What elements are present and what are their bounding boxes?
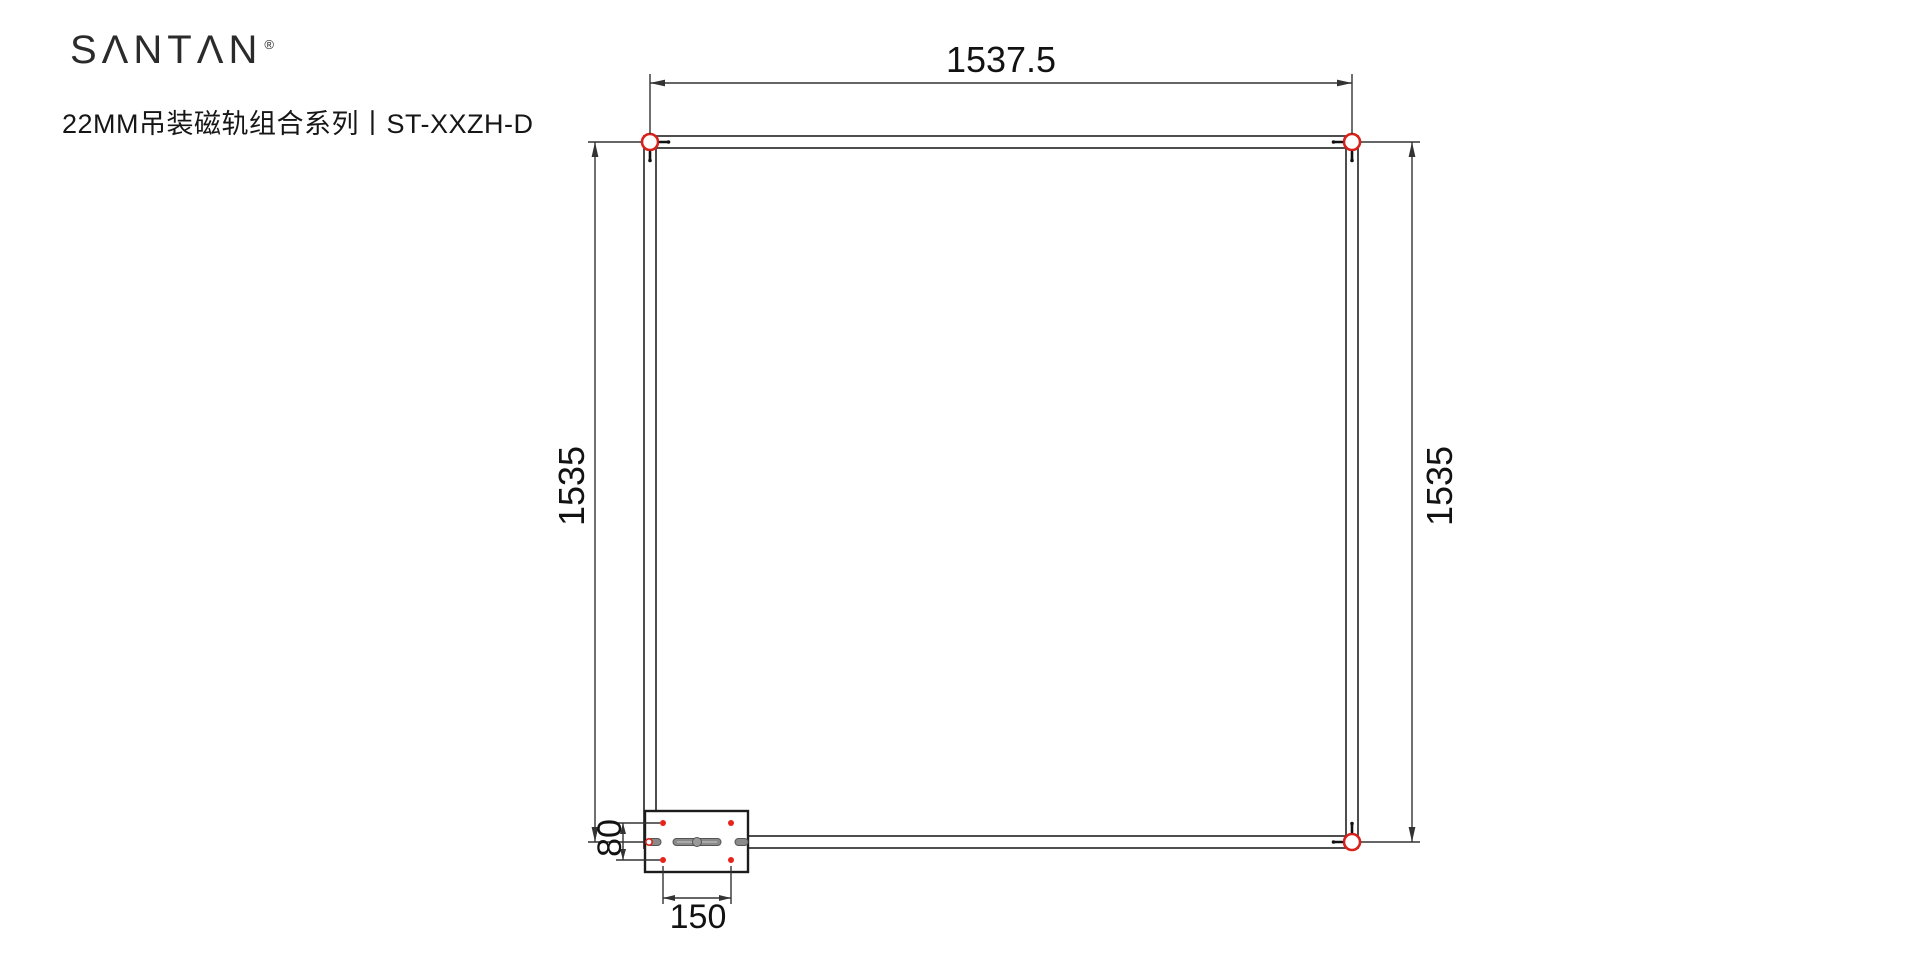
screw-dot <box>660 857 666 863</box>
screw-dot <box>728 857 734 863</box>
dimension-feed-box-height-label: 80 <box>591 819 629 857</box>
page: SΛNTΛN® 22MM吊装磁轨组合系列丨ST-XXZH-D <box>0 0 1920 960</box>
dimension-top: 1537.5 <box>650 39 1352 134</box>
corner-connector-bottom-left-icon <box>646 839 652 845</box>
dimension-feed-box-width-label: 150 <box>670 898 727 936</box>
dimension-left-label: 1535 <box>551 446 592 526</box>
product-series-subtitle: 22MM吊装磁轨组合系列丨ST-XXZH-D <box>62 102 534 141</box>
brand-name: SΛNTΛN <box>70 28 262 72</box>
power-feed-box <box>645 811 748 872</box>
dimension-drawing: 1537.5 1535 1535 80 <box>0 0 1920 960</box>
registered-mark: ® <box>264 37 274 52</box>
dimension-left: 1535 <box>551 142 644 842</box>
dimension-right-label: 1535 <box>1419 446 1460 526</box>
dimension-feed-box-width: 150 <box>663 866 731 936</box>
screw-dot <box>728 820 734 826</box>
dimension-right: 1535 <box>1361 142 1460 842</box>
track-frame <box>644 136 1358 848</box>
brand-logo: SΛNTΛN® <box>70 28 274 73</box>
dimension-top-label: 1537.5 <box>946 39 1056 80</box>
center-slot-hub <box>693 838 702 847</box>
right-coupler <box>735 839 748 846</box>
screw-dot <box>660 820 666 826</box>
